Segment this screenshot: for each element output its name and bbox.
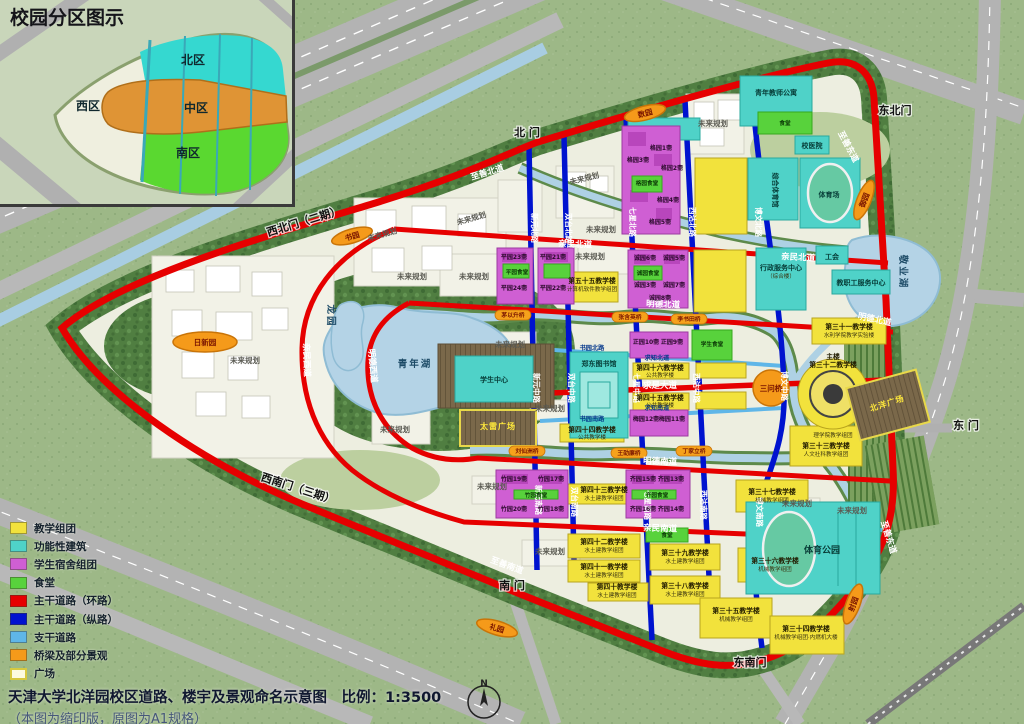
legend-label: 食堂 [34, 575, 55, 590]
legend-label: 主干道路（环路） [34, 593, 118, 608]
legend-color-chip [10, 577, 27, 589]
legend-label: 桥梁及部分景观 [34, 648, 108, 663]
campus-map-page: 日新园书园数园御园射园礼园三问桥茅以升桥张含英桥李书田桥刘仙洲桥王劭廉桥丁家立桥… [0, 0, 1024, 724]
landscape-badge: 张含英桥 [612, 312, 648, 322]
legend-label: 广场 [34, 666, 55, 681]
legend: 教学组团功能性建筑学生宿舍组团食堂主干道路（环路）主干道路（纵路）支干道路桥梁及… [10, 519, 118, 683]
bridge-pill [671, 314, 707, 324]
bridge-pill [676, 446, 712, 456]
legend-color-chip [10, 522, 27, 534]
legend-item: 支干道路 [10, 628, 118, 646]
inset-region-label: 南区 [176, 145, 200, 160]
bridge-pill [612, 312, 648, 322]
inset-region-label: 西区 [76, 99, 100, 113]
map-title: 天津大学北洋园校区道路、楼宇及景观命名示意图 比例：1:3500 [8, 686, 628, 707]
legend-item: 主干道路（环路） [10, 592, 118, 610]
legend-label: 支干道路 [34, 630, 76, 645]
legend-label: 功能性建筑 [34, 539, 87, 554]
landscape-badge: 丁家立桥 [676, 446, 712, 456]
bridge-pill [611, 448, 647, 458]
legend-color-chip [10, 649, 27, 661]
landscape-badge: 刘仙洲桥 [509, 446, 545, 456]
legend-color-chip [10, 558, 27, 570]
legend-item: 教学组团 [10, 519, 118, 537]
inset-region-label: 中区 [184, 100, 208, 115]
tailei-plaza [460, 410, 536, 446]
legend-color-chip [10, 631, 27, 643]
landscape-ellipse [173, 332, 237, 352]
bridge-pill [495, 310, 531, 320]
landscape-badge: 日新园 [173, 332, 237, 352]
landscape-badge: 李书田桥 [671, 314, 707, 324]
map-subtitle: （本图为缩印版，原图为A1规格） [8, 708, 628, 724]
legend-item: 桥梁及部分景观 [10, 646, 118, 664]
legend-item: 广场 [10, 665, 118, 683]
legend-color-chip [10, 595, 27, 607]
legend-item: 食堂 [10, 574, 118, 592]
legend-item: 学生宿舍组团 [10, 555, 118, 573]
bridge-pill [509, 446, 545, 456]
bridge-circle [753, 370, 789, 406]
legend-color-chip [10, 613, 27, 625]
dragon-pond [331, 302, 364, 371]
legend-item: 功能性建筑 [10, 537, 118, 555]
legend-color-chip [10, 540, 27, 552]
footer: 天津大学北洋园校区道路、楼宇及景观命名示意图 比例：1:3500 （本图为缩印版… [8, 686, 628, 724]
inset-zoning-map: 校园分区图示 北区西区中区南区 [0, 0, 295, 207]
legend-color-chip [10, 668, 27, 680]
landscape-badge: 茅以升桥 [495, 310, 531, 320]
legend-label: 学生宿舍组团 [34, 557, 97, 572]
inset-title: 校园分区图示 [10, 6, 124, 29]
landscape-badge: 三问桥 [753, 370, 789, 406]
map-scale: 比例：1:3500 [342, 690, 442, 706]
library-detail [580, 372, 618, 418]
inset-region-label: 北区 [181, 52, 205, 67]
legend-label: 教学组团 [34, 521, 76, 536]
legend-label: 主干道路（纵路） [34, 612, 118, 627]
legend-item: 主干道路（纵路） [10, 610, 118, 628]
landscape-badge: 王劭廉桥 [611, 448, 647, 458]
